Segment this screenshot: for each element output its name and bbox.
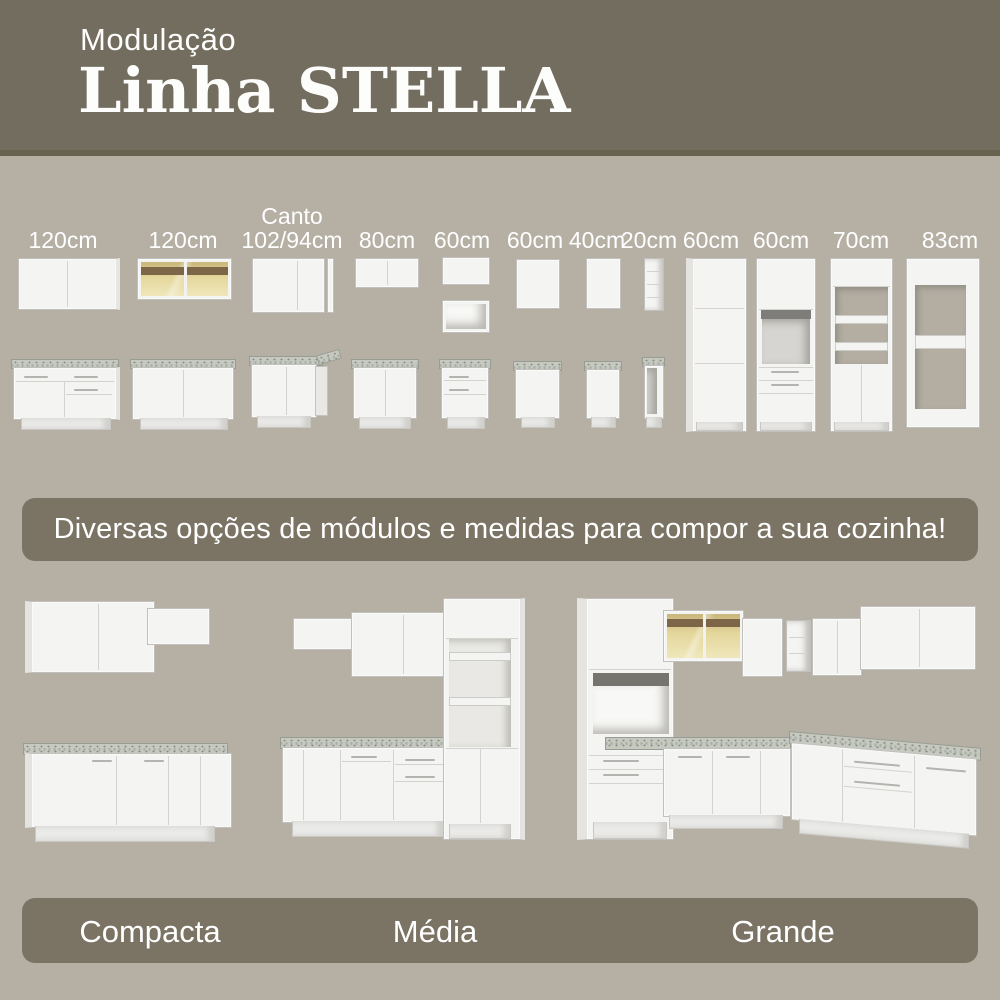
handle (144, 760, 164, 762)
wall-cabinet (742, 618, 783, 677)
drawer-line (844, 766, 912, 773)
module-size-label: 40cm (569, 228, 625, 252)
door-divider (385, 370, 386, 416)
layout-label-media: Média (393, 914, 477, 950)
wall-cabinet-low (293, 618, 353, 650)
wall-cabinet-60-door (516, 259, 560, 309)
wall-cabinet-120-glass-lit (137, 258, 232, 300)
module-size-label: 60cm (507, 228, 563, 252)
drawer-line (395, 781, 449, 782)
glass-lit-interior (667, 614, 740, 658)
module-size-label: 20cm (621, 228, 677, 252)
handle (603, 760, 639, 762)
wall-cabinet-run (25, 601, 155, 673)
base-cabinet-run (282, 747, 452, 823)
module-size-label: 60cm (683, 228, 739, 252)
handle (603, 774, 639, 776)
base-cabinet-80 (353, 367, 417, 419)
banner: Diversas opções de módulos e medidas par… (22, 498, 978, 561)
tall-open-shelf-cabinet-70 (830, 258, 893, 432)
shelf-line (789, 653, 808, 654)
handle (74, 389, 98, 391)
stella-line-infographic: Modulação Linha STELLA 120cm 120cm Canto… (0, 0, 1000, 1000)
niche-interior (446, 304, 486, 329)
wall-cabinet-80 (355, 258, 419, 288)
base-cabinet-120-drawers-doors (13, 367, 120, 420)
shelf-line (789, 637, 808, 638)
door-divider (183, 370, 184, 417)
handle (351, 756, 377, 758)
plinth (140, 418, 228, 430)
plinth (257, 416, 311, 428)
drawer-line (444, 394, 486, 395)
glass-door-divider (184, 262, 187, 296)
plinth (669, 815, 783, 829)
tall-tower-open-shelves (443, 598, 525, 840)
module-size-label: 80cm (359, 228, 415, 252)
module-size-label: 70cm (833, 228, 889, 252)
handle (854, 781, 900, 787)
door-divider (340, 750, 341, 820)
module-size-label: 60cm (434, 228, 490, 252)
module-size-label: 120cm (28, 228, 97, 252)
handle (449, 389, 469, 391)
wall-cabinet-40 (586, 258, 621, 309)
corner-base-cabinet (251, 364, 317, 418)
vent-slot (593, 673, 669, 686)
layout-label-grande: Grande (731, 914, 834, 950)
plinth (696, 422, 743, 431)
wall-cabinet (812, 618, 862, 676)
corner-label-prefix: Canto (241, 204, 342, 228)
shelf-line (647, 284, 661, 285)
plinth (359, 417, 411, 429)
counter-line (446, 748, 518, 749)
base-cabinet-60-drawers (441, 367, 489, 419)
tall-pantry-cabinet-60 (686, 258, 747, 432)
plinth (521, 417, 555, 428)
drawer-line (589, 755, 671, 756)
door-divider (303, 750, 304, 820)
door-divider (67, 261, 68, 307)
door-divider (842, 750, 843, 822)
door-divider (98, 604, 99, 670)
door-divider (919, 609, 920, 667)
plinth (292, 821, 444, 837)
vent-slot (761, 310, 811, 319)
module-size-label: 83cm (922, 228, 978, 252)
base-run-right-perspective (789, 731, 979, 858)
module-size-label: Canto 102/94cm (241, 204, 342, 252)
open-base-column-20 (644, 365, 664, 419)
drawer-line (395, 764, 449, 765)
door-divider (200, 756, 201, 825)
door-divider (403, 615, 404, 674)
plinth (449, 824, 511, 839)
corner-countertop-wing (316, 349, 342, 365)
plinth (21, 418, 111, 430)
oven-niche (762, 319, 810, 364)
base-cabinet-run (25, 753, 232, 828)
collection-eyebrow: Modulação (80, 22, 236, 58)
wall-cabinet (351, 612, 445, 677)
drawer-line (444, 380, 486, 381)
plinth (447, 417, 485, 429)
handle (678, 756, 702, 758)
collection-title: Linha STELLA (78, 54, 571, 127)
drawer-line (759, 393, 813, 394)
shelf (835, 342, 888, 351)
drawer-line (589, 783, 671, 784)
corner-side-panel (315, 366, 328, 416)
wall-cabinet-extension (147, 608, 210, 645)
shelf (449, 652, 511, 661)
wall-cabinet-120-two-doors (18, 258, 120, 310)
header-divider (0, 150, 1000, 156)
header: Modulação Linha STELLA (0, 0, 1000, 150)
drawer-line (16, 381, 114, 382)
module-size-label: 120cm (148, 228, 217, 252)
drawer-line (844, 786, 912, 793)
tall-oven-tower-60 (756, 258, 816, 432)
shelf (449, 697, 511, 706)
oven-niche (593, 686, 669, 734)
glass-lit-interior (141, 262, 228, 296)
layout-label-compacta: Compacta (79, 914, 220, 950)
door-divider (480, 748, 481, 823)
door-divider (286, 367, 287, 415)
door-divider (695, 308, 744, 309)
handle (405, 759, 435, 761)
corner-wall-cabinet (252, 258, 325, 313)
plinth (760, 422, 812, 431)
door-divider (168, 756, 169, 825)
corner-open-shelves (786, 620, 811, 672)
door-divider (116, 756, 117, 825)
handle (405, 776, 435, 778)
shelf-line (647, 297, 661, 298)
tall-oven-tower (577, 598, 674, 840)
handle (854, 761, 900, 767)
shelf-line (647, 271, 661, 272)
wall-cabinet-glass-lit (663, 610, 744, 662)
corner-label-size: 102/94cm (241, 228, 342, 252)
wall-cabinet-60-low (442, 257, 490, 285)
base-cabinet-60-door (515, 369, 560, 419)
handle (771, 384, 799, 386)
layout-name-band: Compacta Média Grande (22, 898, 978, 963)
door-divider (64, 381, 65, 417)
drawer-line (759, 380, 813, 381)
open-niche-60 (442, 300, 490, 333)
door-divider (760, 751, 761, 814)
drawer-line (66, 394, 112, 395)
plinth (591, 417, 616, 428)
door-divider (837, 621, 838, 673)
plinth (646, 417, 662, 428)
module-size-label: 60cm (753, 228, 809, 252)
door-divider (297, 261, 298, 310)
plinth (35, 826, 215, 842)
handle (449, 376, 469, 378)
open-interior (647, 368, 657, 414)
base-cabinet-run (663, 748, 791, 817)
base-cabinet-40 (586, 369, 620, 419)
plinth (593, 822, 667, 839)
door-divider (393, 750, 394, 820)
handle (74, 376, 98, 378)
corner-wall-filler-panel (327, 258, 334, 313)
handle (726, 756, 750, 758)
door-divider (914, 756, 915, 828)
handle (24, 376, 48, 378)
wall-cabinet-wide (860, 606, 976, 670)
open-shelf-area (835, 287, 888, 364)
door-divider (695, 363, 744, 364)
plinth (834, 422, 889, 431)
glass-door-divider (703, 614, 706, 658)
shelf (915, 335, 966, 349)
banner-text: Diversas opções de módulos e medidas par… (54, 513, 947, 546)
handle (771, 371, 799, 373)
drawer-line (589, 769, 671, 770)
handle (92, 760, 112, 762)
door-divider (387, 261, 388, 285)
door-divider (712, 751, 713, 814)
shelf (835, 315, 888, 324)
drawer-line (342, 761, 391, 762)
open-shelf-column-20 (644, 258, 664, 311)
tall-refrigerator-surround-83 (906, 258, 980, 428)
door-divider (861, 365, 862, 422)
door-divider (589, 669, 671, 670)
handle (926, 767, 966, 772)
open-shelf-area (449, 639, 511, 747)
base-cabinet-120-two-doors (132, 367, 234, 420)
drawer-line (759, 367, 813, 368)
